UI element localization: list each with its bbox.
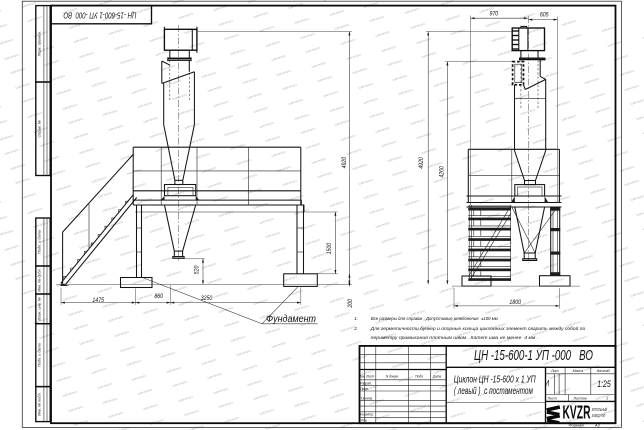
- svg-text:4920: 4920: [418, 157, 425, 169]
- svg-text:4920: 4920: [341, 156, 348, 168]
- svg-text:Н.контр.: Н.контр.: [360, 412, 374, 416]
- svg-text:Подп.: Подп.: [415, 375, 424, 379]
- svg-text:Листов: Листов: [573, 397, 587, 401]
- svg-text:Формат: Формат: [568, 423, 585, 428]
- svg-text:И: И: [545, 378, 550, 388]
- svg-text:Лист: Лист: [365, 375, 375, 379]
- svg-text:Перв. примен.: Перв. примен.: [38, 31, 42, 56]
- svg-text:А3: А3: [594, 423, 601, 428]
- svg-text:1:25: 1:25: [597, 379, 611, 390]
- svg-text:1800: 1800: [509, 299, 521, 306]
- svg-text:Лит.: Лит.: [550, 369, 559, 373]
- svg-text:1500: 1500: [326, 242, 333, 254]
- svg-text:Т.контр.: Т.контр.: [360, 396, 373, 400]
- svg-text:Фундамент: Фундамент: [266, 314, 316, 325]
- svg-text:970: 970: [489, 11, 498, 18]
- svg-text:ЦН -15-600-1 УП -000 ВО: ЦН -15-600-1 УП -000 ВО: [474, 348, 593, 364]
- svg-text:Подп. и дата: Подп. и дата: [38, 230, 42, 254]
- svg-text:2.: 2.: [353, 326, 358, 331]
- svg-text:Для герметичности бункер и опо: Для герметичности бункер и опорные кольц…: [370, 325, 586, 331]
- svg-text:( левый ) с постаментом: ( левый ) с постаментом: [454, 386, 533, 397]
- svg-text:ЗАВОД РЭП: ЗАВОД РЭП: [592, 413, 606, 418]
- svg-text:КОТЕЛЬНЫЙ: КОТЕЛЬНЫЙ: [592, 407, 608, 412]
- svg-text:605: 605: [540, 12, 549, 19]
- svg-text:Масса: Масса: [573, 369, 584, 373]
- svg-text:Инв. № подл.: Инв. № подл.: [38, 392, 42, 416]
- svg-text:200: 200: [347, 299, 354, 309]
- svg-text:Инв. № дубл.: Инв. № дубл.: [38, 268, 42, 291]
- svg-text:3250: 3250: [201, 295, 213, 302]
- svg-text:520: 520: [194, 265, 201, 274]
- svg-text:Взам. инв. №: Взам. инв. №: [38, 297, 42, 320]
- svg-text:KVZR: KVZR: [563, 403, 591, 423]
- svg-text:Утв.: Утв.: [360, 419, 367, 423]
- svg-text:Разраб.: Разраб.: [360, 381, 372, 385]
- svg-text:Пров.: Пров.: [360, 387, 369, 391]
- svg-text:Циклон ЦН -15-600 х 1 УП: Циклон ЦН -15-600 х 1 УП: [454, 374, 537, 385]
- svg-text:ЦН -15-600-1 УП -000 ВО: ЦН -15-600-1 УП -000 ВО: [63, 10, 136, 20]
- svg-text:периметру примыкания плотным ш: периметру примыкания плотным швом . Кате…: [371, 335, 539, 340]
- svg-text:Подп. и дата: Подп. и дата: [38, 343, 42, 367]
- svg-text:1: 1: [606, 397, 608, 401]
- svg-text:Лист: Лист: [547, 397, 557, 401]
- svg-text:1.: 1.: [354, 316, 358, 321]
- svg-text:4260: 4260: [439, 166, 446, 178]
- svg-text:860: 860: [154, 293, 163, 300]
- svg-text:Все размеры для справок , Допу: Все размеры для справок , Допустимые отк…: [371, 316, 498, 321]
- svg-text:Масштаб: Масштаб: [597, 369, 611, 373]
- svg-text:Справ. №: Справ. №: [38, 120, 42, 137]
- svg-text:Изм.: Изм.: [359, 375, 366, 379]
- svg-text:Дата: Дата: [432, 375, 442, 379]
- svg-text:1475: 1475: [92, 297, 104, 304]
- svg-text:N докум.: N докум.: [386, 375, 399, 379]
